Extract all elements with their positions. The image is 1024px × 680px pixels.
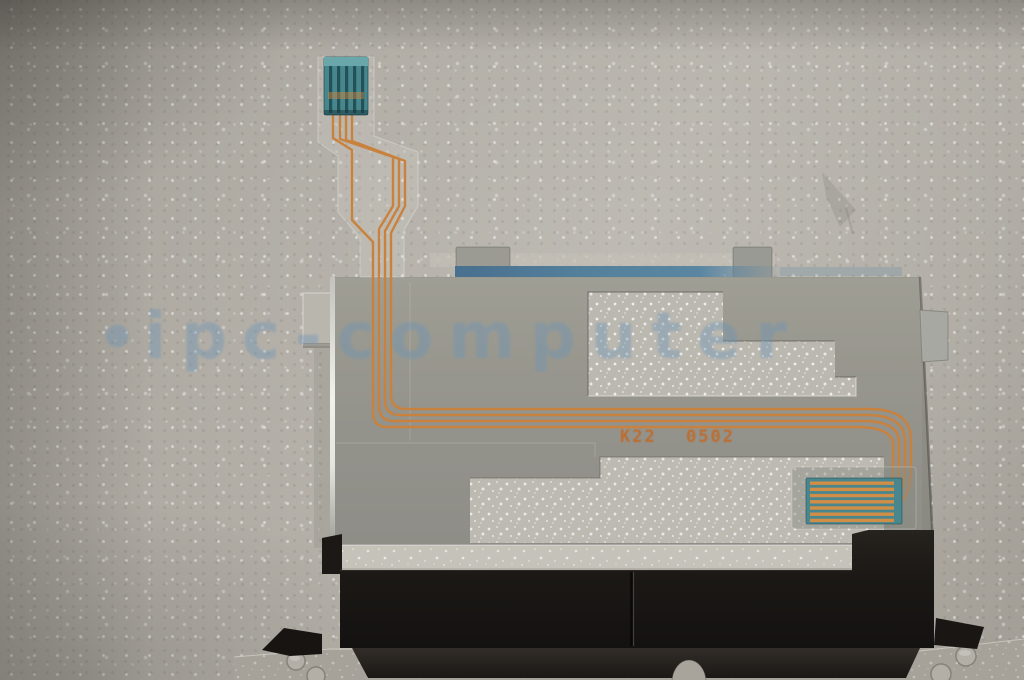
button-left-tab bbox=[322, 534, 342, 574]
touchpad-assembly bbox=[0, 0, 1024, 680]
plate-tab-right bbox=[920, 310, 948, 362]
foam-crease-mark bbox=[822, 172, 856, 234]
flex-connector-pads bbox=[792, 467, 916, 529]
adhesive-strip-blue bbox=[455, 266, 783, 277]
plate-tab-left-shadow bbox=[303, 343, 334, 348]
button-right-foot bbox=[934, 618, 984, 649]
button-bezel bbox=[352, 648, 920, 678]
flex-connector-top bbox=[324, 57, 368, 115]
button-left-foot bbox=[262, 628, 322, 656]
plate-shadow bbox=[314, 348, 332, 548]
plate-bottom-lip bbox=[336, 545, 922, 568]
adhesive-strip-faint bbox=[780, 267, 902, 276]
photo-stage: K22 0502 ●ipc-computer bbox=[0, 0, 1024, 680]
plate-tab-left bbox=[303, 293, 334, 345]
